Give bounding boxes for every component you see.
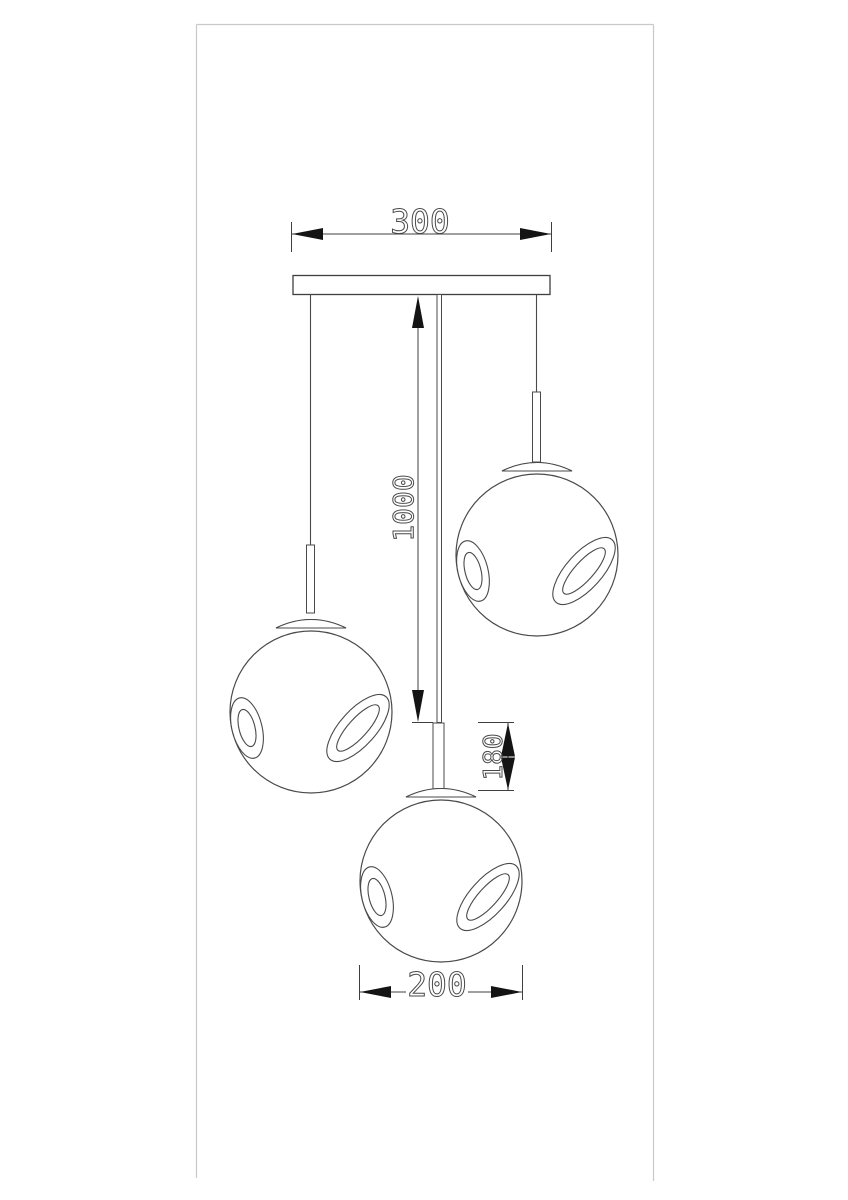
shade-bottom [355,789,530,963]
dimension-label-canopy-width: 300 [390,202,450,241]
arrowhead-right-icon [491,986,522,998]
arrowhead-left-icon [360,986,391,998]
cord-grip-middle [433,723,444,793]
arrowhead-left-icon [292,228,323,240]
arrowhead-down-icon [412,690,424,722]
shade-upper-right [451,463,626,637]
shade-left [225,620,400,794]
cord-grip-right [533,392,541,462]
dimension-label-stem-height: 180 [479,734,509,781]
dimension-label-suspension-drop: 1000 [387,474,420,541]
dimension-shade-diameter: 200 [360,965,523,1004]
dimension-suspension-drop: 1000 [387,296,433,723]
technical-drawing-canvas: 300 1000 180 [0,0,848,1200]
dimension-label-shade-diameter: 200 [407,965,467,1004]
dimension-stem-height: 180 [478,723,515,791]
cord-grip-left [307,545,315,613]
ceiling-canopy-plate [293,276,550,295]
dimension-canopy-width: 300 [292,202,552,252]
cord-middle [437,295,442,723]
drawing-page: 300 1000 180 [0,0,848,1200]
arrowhead-right-icon [520,228,551,240]
arrowhead-up-icon [412,296,424,328]
